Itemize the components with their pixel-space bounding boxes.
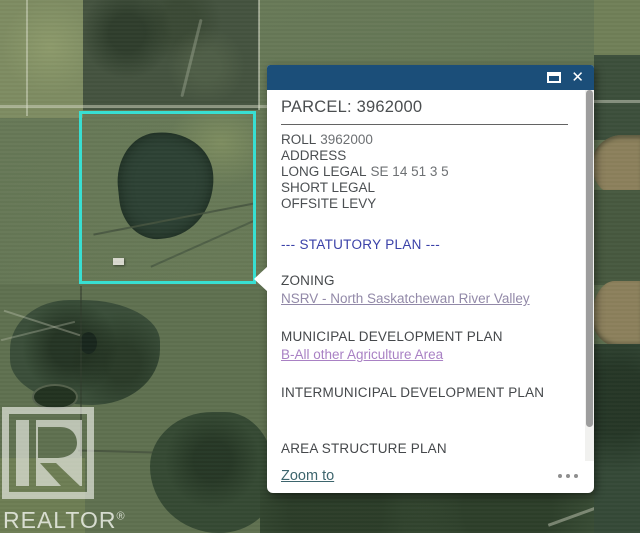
section-heading: ZONING	[281, 273, 570, 289]
zoning-link[interactable]: NSRV - North Saskatchewan River Valley	[281, 289, 530, 308]
title-divider	[281, 124, 568, 125]
map-forest-right	[594, 344, 640, 533]
field-row: OFFSITE LEVY	[281, 196, 570, 212]
close-icon[interactable]: ✕	[571, 70, 584, 85]
section-municipal-development-plan: MUNICIPAL DEVELOPMENT PLAN B-All other A…	[281, 329, 570, 364]
map-road-line	[0, 105, 267, 108]
map-road-line	[258, 0, 260, 110]
map-field-top-left	[0, 0, 83, 118]
map-field-bottom-left	[0, 458, 85, 533]
field-row: ADDRESS	[281, 148, 570, 164]
field-row: ROLL3962000	[281, 132, 570, 148]
zoom-to-link[interactable]: Zoom to	[281, 468, 334, 484]
section-zoning: ZONING NSRV - North Saskatchewan River V…	[281, 273, 570, 308]
area-structure-plan-link[interactable]: Genesee ASP	[281, 457, 366, 461]
parcel-highlight[interactable]	[79, 111, 256, 284]
popup-header: ✕	[267, 65, 594, 90]
municipal-development-plan-link[interactable]: B-All other Agriculture Area	[281, 345, 443, 364]
map-road-line	[26, 0, 28, 116]
map-road-line	[594, 100, 640, 103]
popup-footer: Zoom to	[267, 461, 594, 493]
field-row: SHORT LEGAL	[281, 180, 570, 196]
map-field-right	[594, 0, 640, 62]
map-pond	[80, 332, 97, 354]
section-area-structure-plan: AREA STRUCTURE PLAN Genesee ASP	[281, 441, 570, 461]
section-heading: INTERMUNICIPAL DEVELOPMENT PLAN	[281, 385, 570, 401]
map-river	[592, 135, 640, 193]
map-dark-field-top	[83, 0, 259, 110]
scrollbar-thumb[interactable]	[586, 90, 593, 427]
popup-pointer	[254, 266, 268, 292]
parcel-popup: ✕ PARCEL: 3962000 ROLL3962000 ADDRESS LO…	[267, 65, 594, 493]
map-forest-right	[594, 55, 640, 140]
map-pond	[32, 384, 78, 410]
map-boundary-line	[80, 286, 82, 456]
section-intermunicipal-development-plan: INTERMUNICIPAL DEVELOPMENT PLAN	[281, 385, 570, 420]
field-row: LONG LEGALSE 14 51 3 5	[281, 164, 570, 180]
maximize-icon[interactable]	[547, 72, 561, 83]
popup-body[interactable]: PARCEL: 3962000 ROLL3962000 ADDRESS LONG…	[267, 90, 594, 461]
ellipsis-icon[interactable]	[558, 470, 578, 482]
intermunicipal-development-plan-link	[281, 401, 570, 420]
section-heading: AREA STRUCTURE PLAN	[281, 441, 570, 457]
map-forest-right	[594, 190, 640, 285]
parcel-title: PARCEL: 3962000	[281, 98, 570, 117]
section-heading: MUNICIPAL DEVELOPMENT PLAN	[281, 329, 570, 345]
statutory-plan-divider: --- STATUTORY PLAN ---	[281, 237, 570, 252]
popup-scrollbar[interactable]	[585, 90, 594, 461]
map-river	[592, 281, 640, 347]
